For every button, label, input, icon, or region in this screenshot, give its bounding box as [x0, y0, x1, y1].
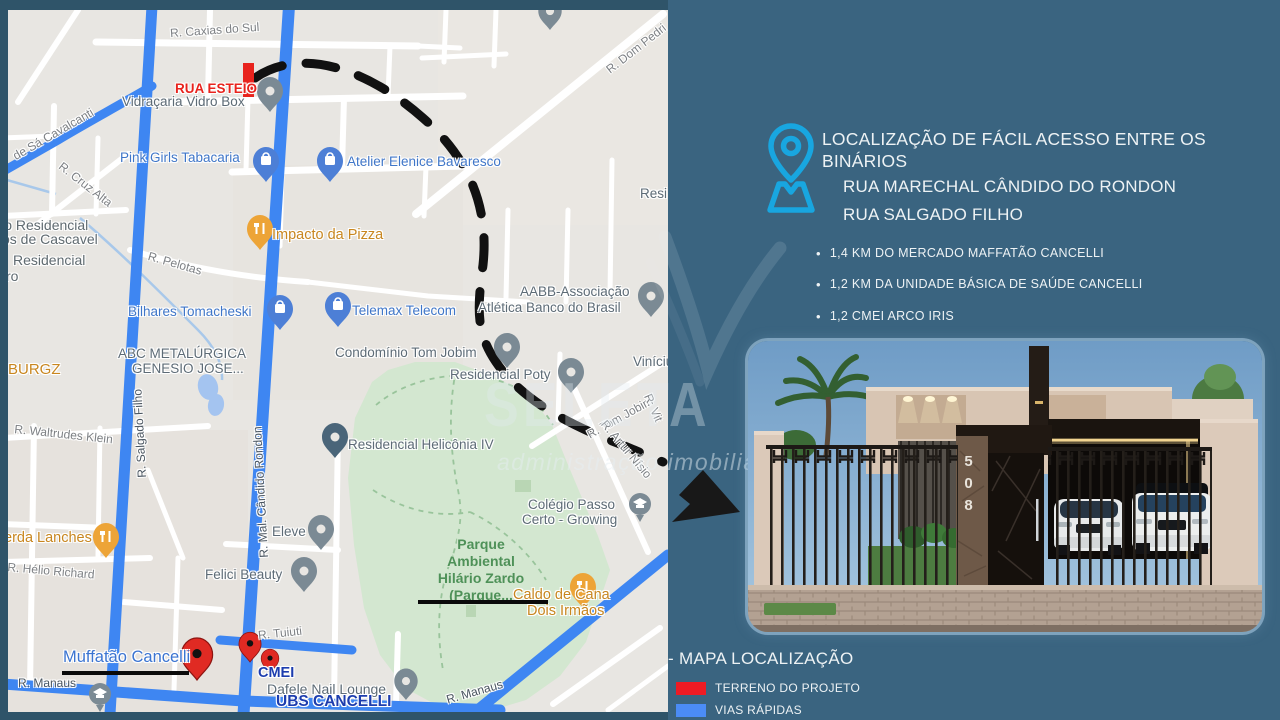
- poi-label-felici: Felici Beauty: [205, 568, 282, 582]
- poi-pin-gray: [308, 515, 334, 550]
- area-label-residencial-3: Residencial: [13, 253, 85, 268]
- poi-label-telemax: Telemax Telecom: [352, 304, 456, 318]
- poi-label-abc-1: ABC METALÚRGICA: [118, 347, 246, 361]
- legend-row-terreno: TERRENO DO PROJETO: [676, 681, 860, 695]
- fence-gate-right: [1048, 451, 1212, 589]
- legend-label: TERRENO DO PROJETO: [715, 681, 860, 695]
- poi-label-bilhares: Bilhares Tomacheski: [128, 305, 252, 319]
- poi-label-burgz: BURGZ: [8, 362, 61, 378]
- poi-label-vinicius: Vinícius: [633, 355, 668, 369]
- poi-label-eleve: Eleve: [272, 525, 306, 539]
- poi-label-muffatao: Muffatão Cancelli: [63, 649, 190, 666]
- distance-bullet-2: • 1,2 KM DA UNIDADE BÁSICA DE SAÚDE CANC…: [816, 277, 1143, 291]
- panel-heading-line1: LOCALIZAÇÃO DE FÁCIL ACESSO ENTRE OS: [822, 129, 1206, 150]
- poi-label-abc-2: GENESIO JOSE...: [132, 362, 244, 376]
- poi-label-impacto: Impacto da Pizza: [272, 228, 383, 243]
- bullet-dot: •: [816, 247, 821, 260]
- area-label-residencial-2: os de Cascavel: [8, 232, 98, 247]
- poi-label-condominio-tj: Condomínio Tom Jobim: [335, 346, 477, 360]
- street-label-manaus-1: R. Manaus: [18, 677, 76, 690]
- legend-label: VIAS RÁPIDAS: [715, 703, 802, 717]
- led-strip: [1052, 439, 1198, 442]
- distance-bullet-3: • 1,2 CMEI ARCO IRIS: [816, 309, 954, 323]
- poi-label-aabb-2: Atlética Banco do Brasil: [478, 301, 621, 315]
- location-pin-icon: [762, 118, 820, 216]
- poi-label-colegio-2: Certo - Growing: [522, 513, 617, 527]
- poi-pin-gray: [558, 358, 584, 393]
- area-label-resi: Resi: [640, 187, 667, 201]
- poi-label-cmei: CMEI: [258, 666, 294, 681]
- poi-label-heliconia: Residencial Helicônia IV: [348, 438, 494, 452]
- house-number: 508: [960, 453, 977, 519]
- underline-muffatao: [62, 671, 189, 675]
- arrow-to-house-icon: [670, 464, 746, 530]
- bullet-dot: •: [816, 310, 821, 323]
- map-frame: R. Caxias do Sul RUA ESTEIO Vidraçaria V…: [0, 0, 668, 720]
- legend-swatch-blue: [676, 704, 706, 717]
- poi-label-ubs: UBS CANCELLI: [276, 694, 391, 710]
- poi-label-colegio-1: Colégio Passo: [528, 498, 615, 512]
- area-label-residencial-4: ro: [8, 269, 18, 284]
- poi-label-caldo-2: Dois Irmãos: [527, 604, 604, 619]
- house-render-graphics: [748, 341, 1262, 632]
- distance-bullet-1: • 1,4 KM DO MERCADO MAFFATÃO CANCELLI: [816, 246, 1104, 260]
- poi-pin-gray: [638, 282, 664, 317]
- panel-road-salgado: RUA SALGADO FILHO: [843, 205, 1023, 225]
- poi-label-lanches: erda Lanches: [8, 531, 92, 546]
- poi-pin-gray: [291, 557, 317, 592]
- fence-left: [766, 449, 958, 589]
- legend-title: - MAPA LOCALIZAÇÃO: [668, 649, 854, 669]
- panel-road-rondon: RUA MARECHAL CÂNDIDO DO RONDON: [843, 177, 1176, 197]
- poi-label-pink-girls: Pink Girls Tabacaria: [120, 151, 240, 165]
- bullet-dot: •: [816, 278, 821, 291]
- panel-heading-line2: BINÁRIOS: [822, 151, 907, 172]
- location-map: R. Caxias do Sul RUA ESTEIO Vidraçaria V…: [8, 10, 668, 712]
- poi-label-aabb-1: AABB-Associação: [520, 285, 630, 299]
- legend-swatch-red: [676, 682, 706, 695]
- poi-label-poty: Residencial Poty: [450, 368, 551, 382]
- poi-label-vidracaria: Vidraçaria Vidro Box: [122, 95, 245, 109]
- poi-label-atelier: Atelier Elenice Bavaresco: [347, 155, 501, 169]
- legend-row-vias: VIAS RÁPIDAS: [676, 703, 802, 717]
- entry-tower: [1029, 346, 1049, 438]
- house-render-image: 508: [748, 341, 1262, 632]
- underline-parque: [418, 600, 548, 604]
- poi-pin-slate: [322, 423, 348, 458]
- flyer: R. Caxias do Sul RUA ESTEIO Vidraçaria V…: [0, 0, 1280, 720]
